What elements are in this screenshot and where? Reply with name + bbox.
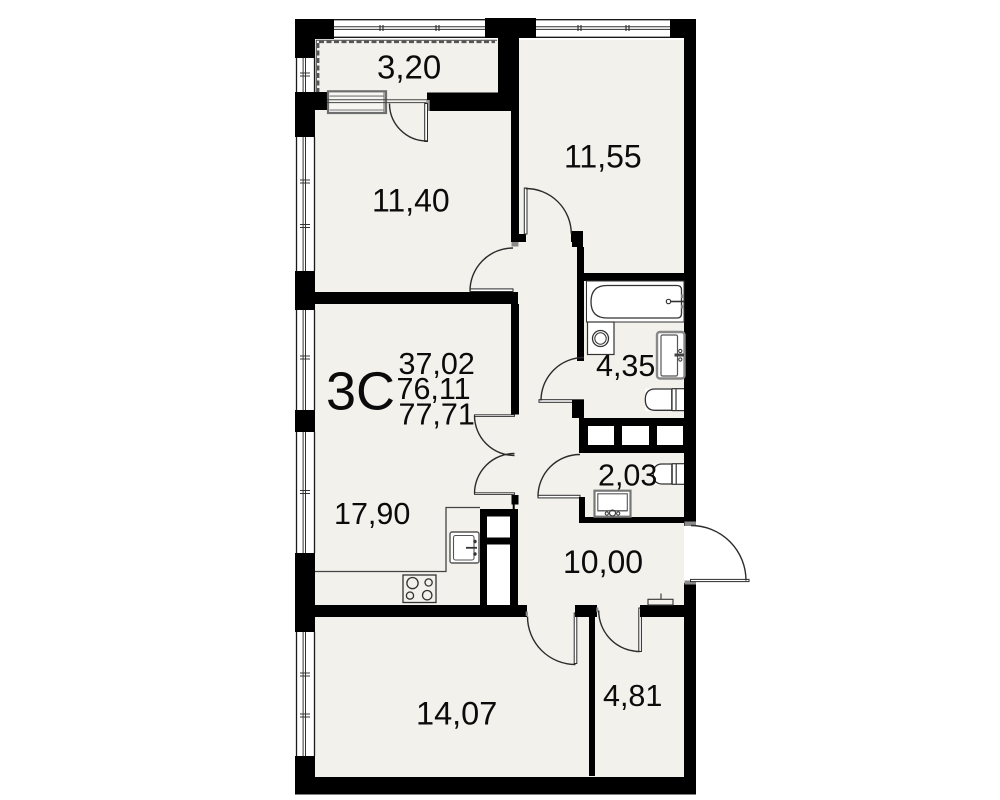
svg-text:10,00: 10,00 [563, 544, 643, 580]
svg-text:11,40: 11,40 [372, 183, 450, 219]
svg-text:17,90: 17,90 [334, 497, 410, 531]
svg-text:77,71: 77,71 [399, 397, 475, 431]
svg-text:4,35: 4,35 [596, 349, 655, 383]
svg-text:3,20: 3,20 [377, 49, 441, 86]
svg-text:4,81: 4,81 [603, 679, 662, 713]
svg-text:2,03: 2,03 [598, 459, 657, 493]
svg-text:3C: 3C [326, 362, 395, 422]
svg-text:11,55: 11,55 [564, 139, 642, 175]
svg-text:14,07: 14,07 [416, 695, 497, 731]
